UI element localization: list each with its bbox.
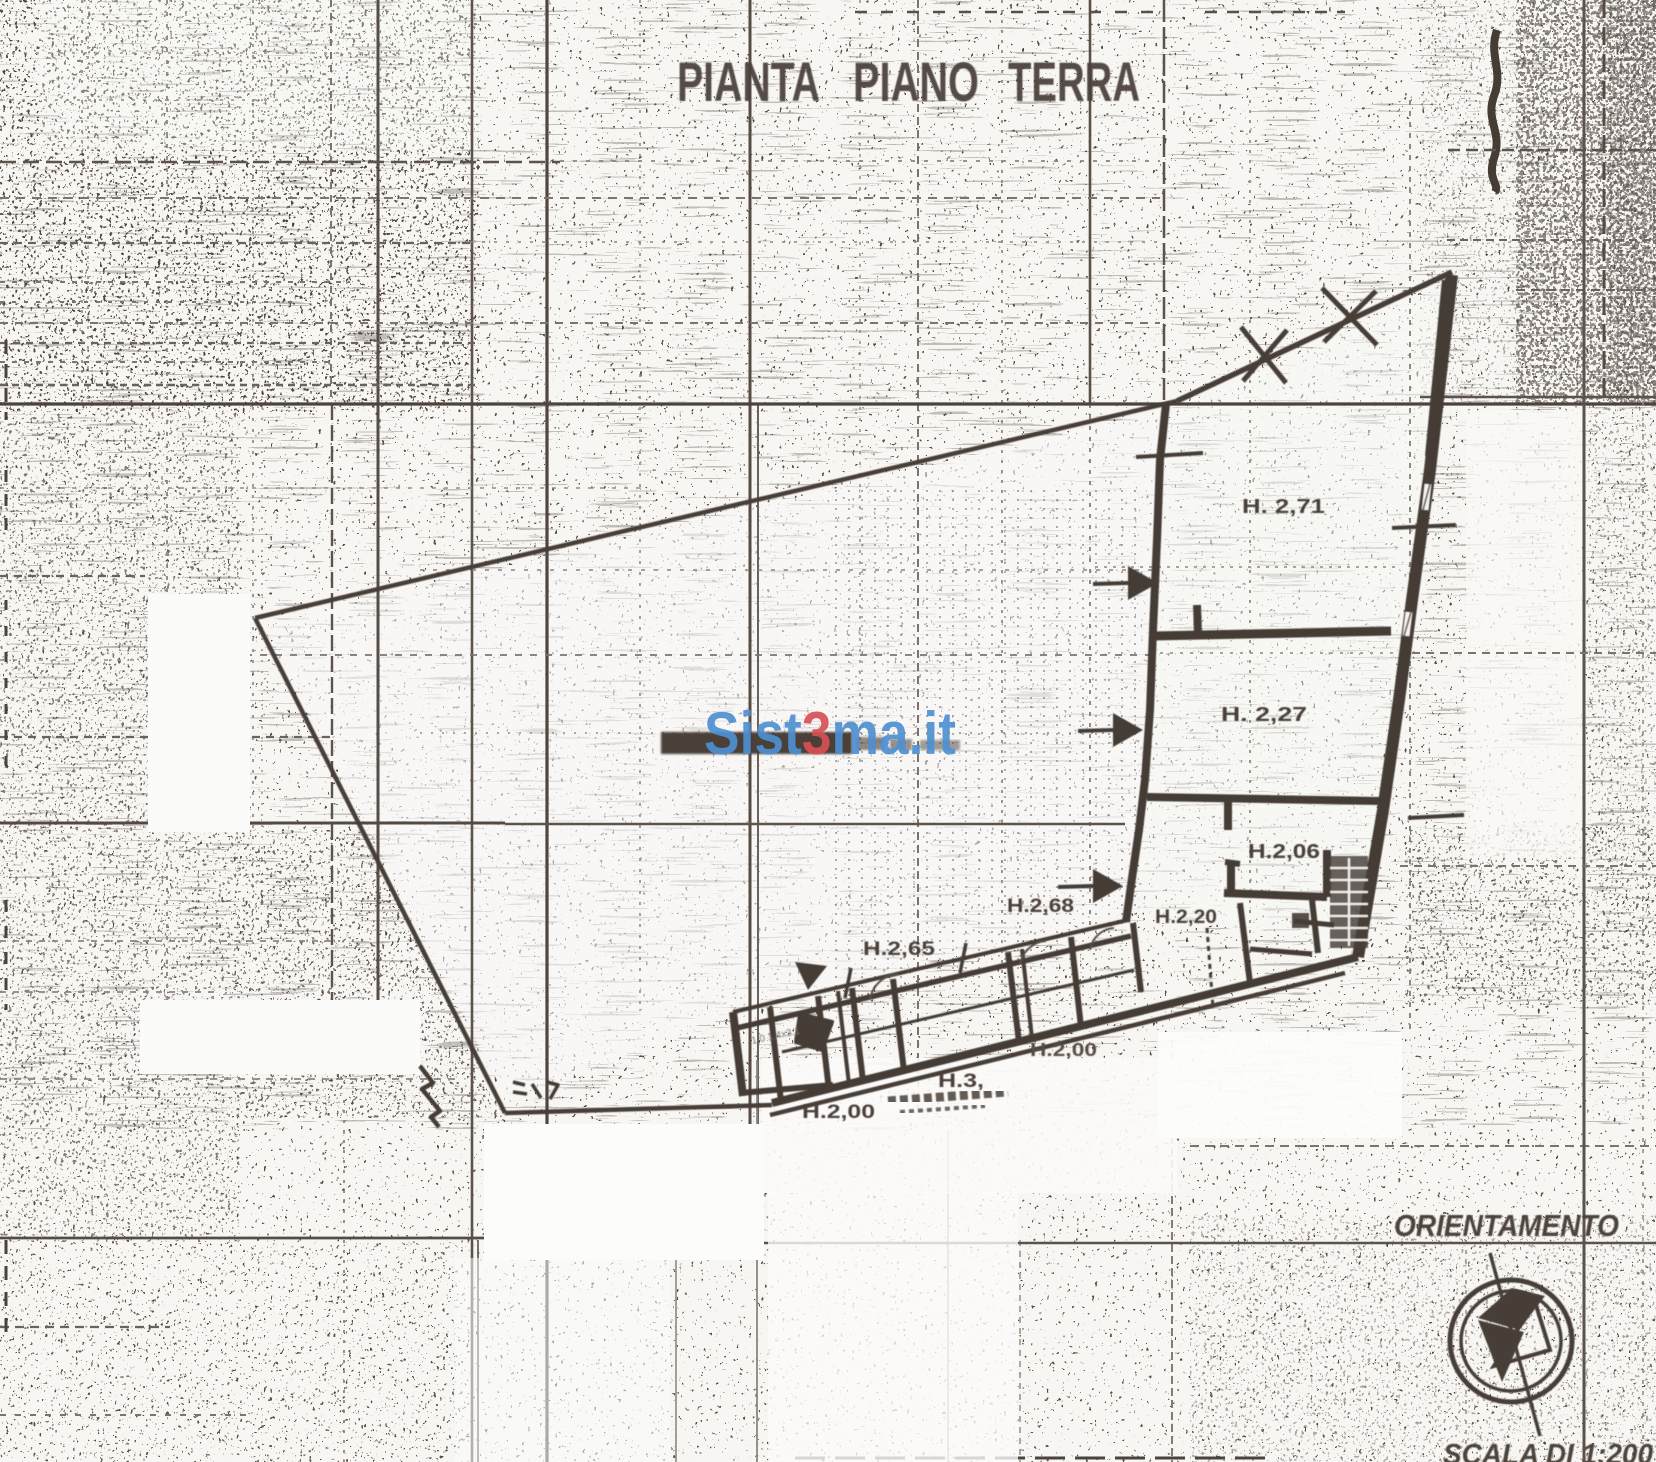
svg-text:H.2,00: H.2,00 xyxy=(802,1102,875,1123)
svg-text:H.3,: H.3, xyxy=(938,1071,984,1092)
svg-text:TERRA: TERRA xyxy=(1008,50,1140,113)
svg-text:PIANO: PIANO xyxy=(853,50,979,113)
svg-text:ORIENTAMENTO: ORIENTAMENTO xyxy=(1394,1208,1619,1243)
svg-text:H.2,20: H.2,20 xyxy=(1155,907,1217,928)
svg-text:H.2,65: H.2,65 xyxy=(863,939,936,960)
svg-text:H. 2,27: H. 2,27 xyxy=(1221,704,1307,726)
svg-text:H.2,68: H.2,68 xyxy=(1007,896,1074,917)
svg-text:H.2,00: H.2,00 xyxy=(1030,1040,1097,1060)
svg-text:PIANTA: PIANTA xyxy=(677,50,820,113)
svg-text:Sist3ma.it: Sist3ma.it xyxy=(704,700,956,767)
svg-text:H.2,06: H.2,06 xyxy=(1248,841,1320,863)
svg-text:SCALA DI 1:200: SCALA DI 1:200 xyxy=(1443,1439,1653,1462)
svg-text:H. 2,71: H. 2,71 xyxy=(1242,496,1325,518)
